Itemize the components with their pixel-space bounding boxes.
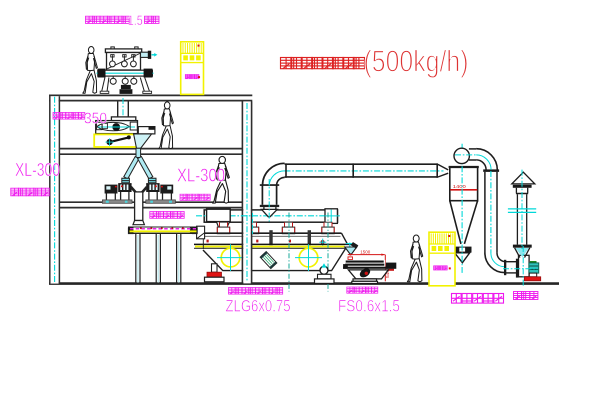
svg-text:1400: 1400 [453, 184, 467, 189]
svg-text:ZLG6x0.75: ZLG6x0.75 [226, 297, 291, 316]
svg-text:XL-300: XL-300 [15, 160, 60, 180]
svg-text:1500: 1500 [360, 250, 370, 256]
svg-text:(500kg/h): (500kg/h) [364, 44, 469, 79]
svg-text:FS0.6x1.5: FS0.6x1.5 [338, 297, 400, 316]
svg-text:1.5: 1.5 [128, 12, 143, 28]
svg-text:XL-300: XL-300 [177, 166, 225, 186]
svg-text:350: 350 [84, 111, 107, 128]
